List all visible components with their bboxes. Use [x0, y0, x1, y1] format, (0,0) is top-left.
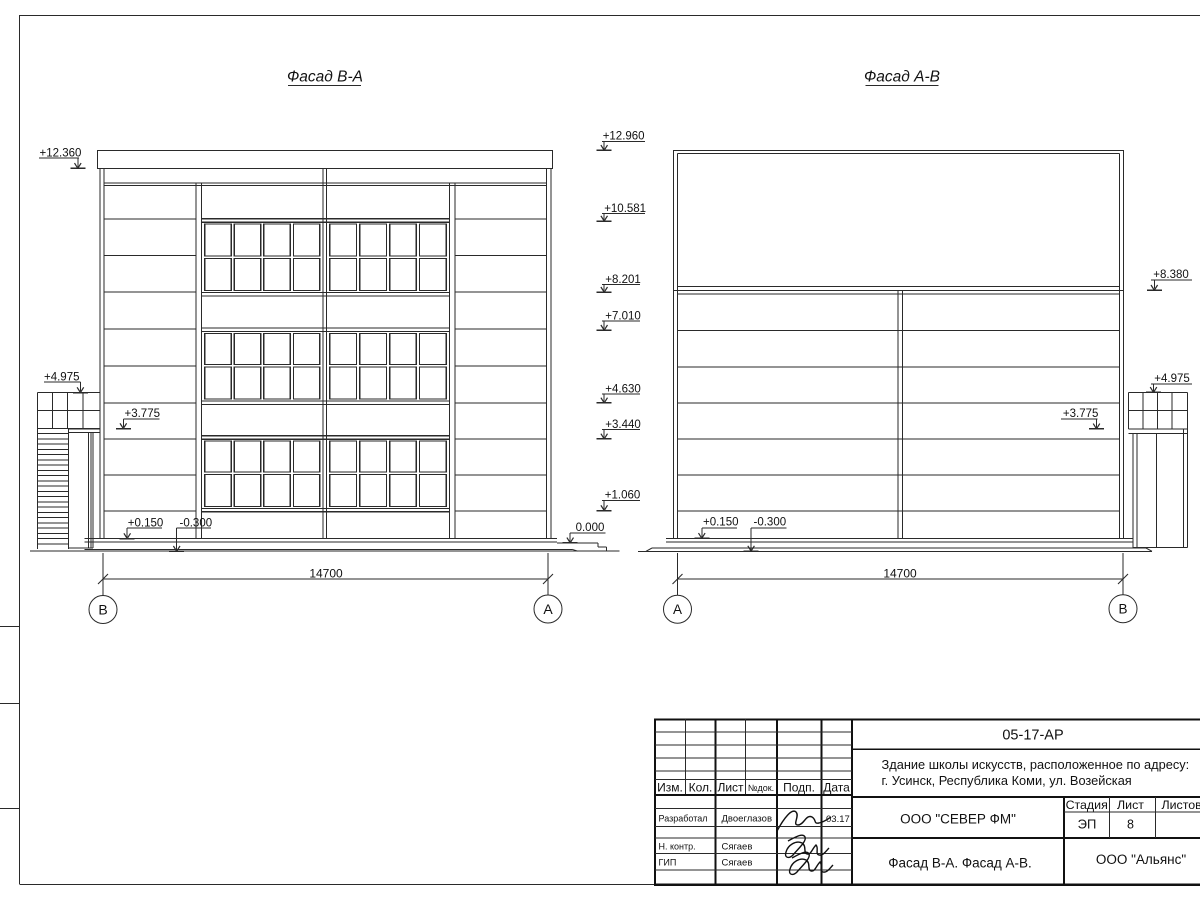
svg-text:+4.975: +4.975	[44, 371, 80, 383]
svg-text:Стадия: Стадия	[1066, 798, 1108, 812]
svg-text:05-17-АР: 05-17-АР	[1002, 728, 1063, 744]
svg-text:-0.300: -0.300	[180, 517, 213, 529]
svg-text:ООО "СЕВЕР ФМ": ООО "СЕВЕР ФМ"	[900, 811, 1016, 826]
svg-text:ГИП: ГИП	[659, 857, 677, 867]
svg-text:+1.060: +1.060	[605, 490, 641, 502]
svg-text:+3.775: +3.775	[125, 408, 161, 420]
svg-text:14700: 14700	[883, 566, 917, 580]
svg-text:ООО "Альянс": ООО "Альянс"	[1096, 852, 1186, 867]
svg-text:8: 8	[1127, 818, 1134, 832]
svg-text:Сягаев: Сягаев	[722, 842, 753, 853]
svg-text:Листов: Листов	[1162, 798, 1200, 812]
svg-text:03.17: 03.17	[826, 814, 850, 825]
svg-text:Изм.: Изм.	[657, 781, 683, 795]
svg-text:А: А	[543, 601, 553, 617]
svg-text:Сягаев: Сягаев	[722, 857, 753, 868]
svg-text:№док.: №док.	[748, 783, 774, 793]
svg-text:В: В	[1118, 602, 1127, 617]
svg-text:Фасад В-А: Фасад В-А	[287, 69, 363, 86]
svg-text:Фасад А-В: Фасад А-В	[864, 69, 940, 86]
svg-text:Н. контр.: Н. контр.	[659, 842, 696, 852]
svg-text:+0.150: +0.150	[703, 517, 739, 529]
svg-text:Двоеглазов: Двоеглазов	[722, 813, 773, 824]
svg-text:Кол.: Кол.	[689, 781, 713, 795]
svg-text:Лист: Лист	[717, 781, 744, 795]
svg-text:Разработал: Разработал	[659, 813, 708, 823]
svg-text:Лист: Лист	[1117, 798, 1144, 812]
svg-text:Здание школы искусств, располо: Здание школы искусств, расположенное по …	[882, 757, 1190, 772]
svg-text:г. Усинск, Республика Коми, ул: г. Усинск, Республика Коми, ул. Возейска…	[882, 773, 1132, 788]
svg-text:ЭП: ЭП	[1078, 817, 1097, 832]
svg-text:+0.150: +0.150	[128, 517, 164, 529]
svg-text:А: А	[673, 602, 682, 617]
svg-text:+8.380: +8.380	[1153, 269, 1189, 281]
svg-text:Подп.: Подп.	[783, 781, 815, 795]
svg-text:Фасад В-А. Фасад А-В.: Фасад В-А. Фасад А-В.	[888, 855, 1032, 870]
svg-text:Дата: Дата	[823, 781, 850, 795]
svg-text:В: В	[98, 602, 107, 618]
svg-text:+12.960: +12.960	[603, 131, 645, 143]
svg-text:-0.300: -0.300	[754, 517, 787, 529]
svg-text:14700: 14700	[309, 566, 343, 580]
